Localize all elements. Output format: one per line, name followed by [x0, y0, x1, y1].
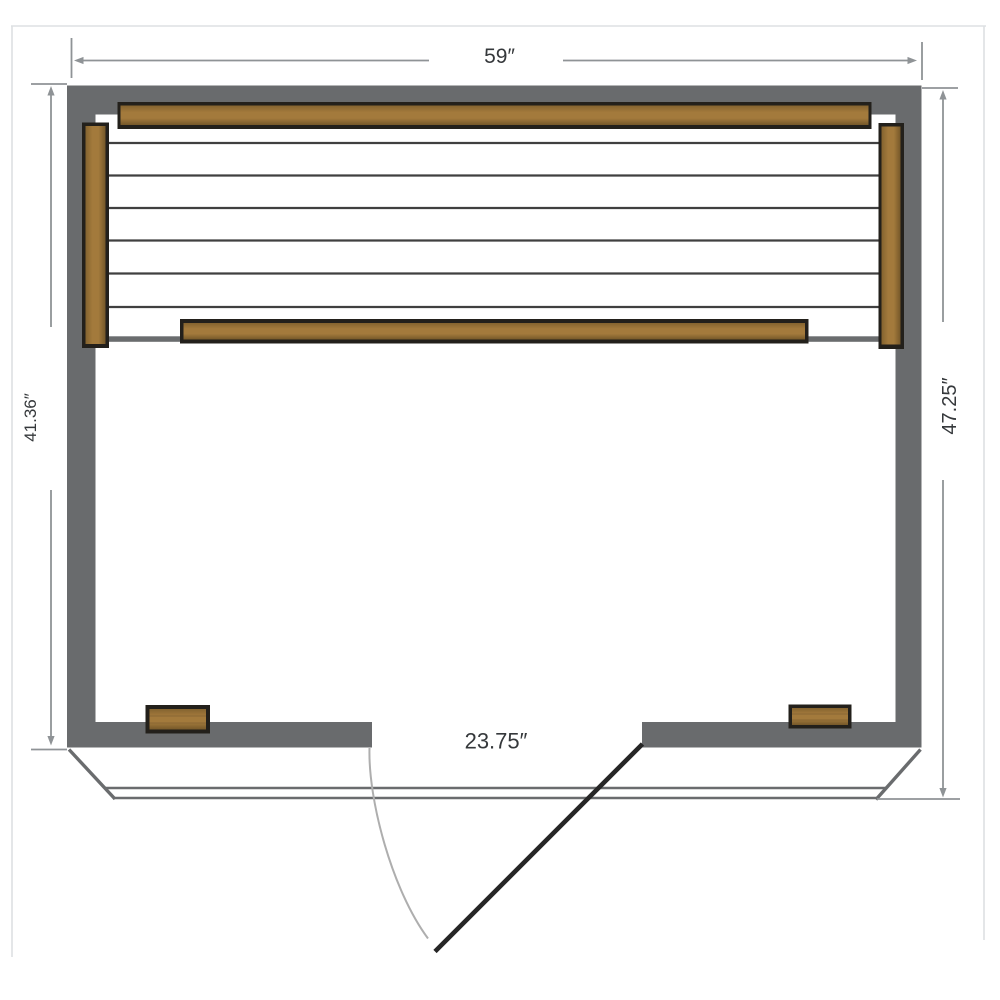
svg-text:41.36″: 41.36″	[21, 393, 40, 442]
svg-text:59″: 59″	[484, 45, 515, 68]
svg-text:23.75″: 23.75″	[465, 729, 528, 754]
svg-text:47.25″: 47.25″	[939, 377, 961, 434]
